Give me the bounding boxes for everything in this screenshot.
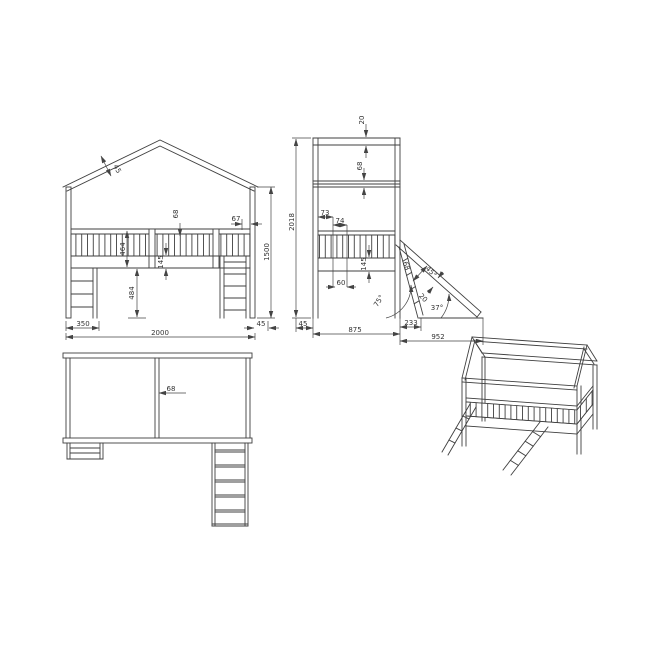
right-post — [250, 187, 255, 318]
railing-slats — [71, 234, 250, 256]
side-elevation-view: 20 68 2018 73 74 145 60 75° 68 45° 20 37… — [288, 116, 483, 345]
mid-post-left — [149, 229, 155, 268]
dim-plan-divider-width: 68 — [167, 385, 176, 393]
dim-side-slat-pitch: 74 — [336, 217, 345, 225]
dim-front-slat-gap: 68 — [172, 210, 180, 219]
roof-inner-line — [67, 146, 254, 191]
dim-front-post-width: 45 — [257, 320, 266, 328]
dim-front-overall-height: 1500 — [263, 243, 271, 261]
technical-drawing-canvas: 45 68 67 1500 464 145 484 350 2000 45 — [0, 0, 650, 650]
dim-side-overall-depth: 875 — [348, 326, 361, 334]
side-railing-slats — [318, 235, 395, 258]
dim-side-ladder-foot-offset: 233 — [404, 319, 417, 327]
dim-side-frame-height: 145 — [360, 257, 368, 270]
plan-view: 68 — [63, 353, 252, 526]
dim-side-overall-height: 2018 — [288, 213, 296, 231]
plan-top-cap — [63, 353, 252, 358]
iso-front-slats — [466, 402, 577, 424]
dim-side-ladder-width: 68 — [401, 260, 412, 271]
dim-side-slide-angle: 37° — [431, 304, 443, 312]
plan-right-ladder — [212, 443, 248, 526]
dim-side-post-width: 45 — [299, 320, 308, 328]
front-elevation-view: 45 68 67 1500 464 145 484 350 2000 45 — [63, 140, 279, 340]
dim-side-slide-cross: 45° — [424, 265, 438, 279]
roof-outline — [63, 140, 258, 187]
dim-front-ladder-offset: 350 — [76, 320, 89, 328]
plan-bottom-cap — [63, 438, 252, 443]
front-right-ladder — [220, 256, 246, 318]
dim-side-ladder-angle: 75° — [372, 294, 385, 309]
dim-side-slide-reach: 952 — [431, 333, 444, 341]
plan-left-ladder — [67, 443, 103, 459]
dim-side-roof-beam-thickness: 20 — [358, 116, 366, 125]
isometric-view — [442, 337, 597, 475]
dim-front-frame-height: 145 — [157, 255, 165, 268]
front-left-ladder — [71, 268, 97, 318]
left-post — [66, 187, 71, 318]
dim-front-end-gap: 67 — [232, 215, 241, 223]
technical-drawing: 45 68 67 1500 464 145 484 350 2000 45 — [0, 0, 650, 650]
dim-side-beam-gap: 68 — [356, 162, 364, 171]
dim-front-railing-height: 464 — [119, 242, 127, 256]
dim-front-overall-length: 2000 — [151, 329, 169, 337]
dim-side-slide-thickness: 20 — [417, 292, 429, 304]
side-ladder — [399, 244, 423, 318]
dim-side-slat-offset: 73 — [321, 209, 330, 217]
dim-side-rung-width: 60 — [337, 279, 346, 287]
mid-post-right — [213, 229, 219, 268]
dim-front-underbed-clearance: 484 — [128, 286, 136, 300]
